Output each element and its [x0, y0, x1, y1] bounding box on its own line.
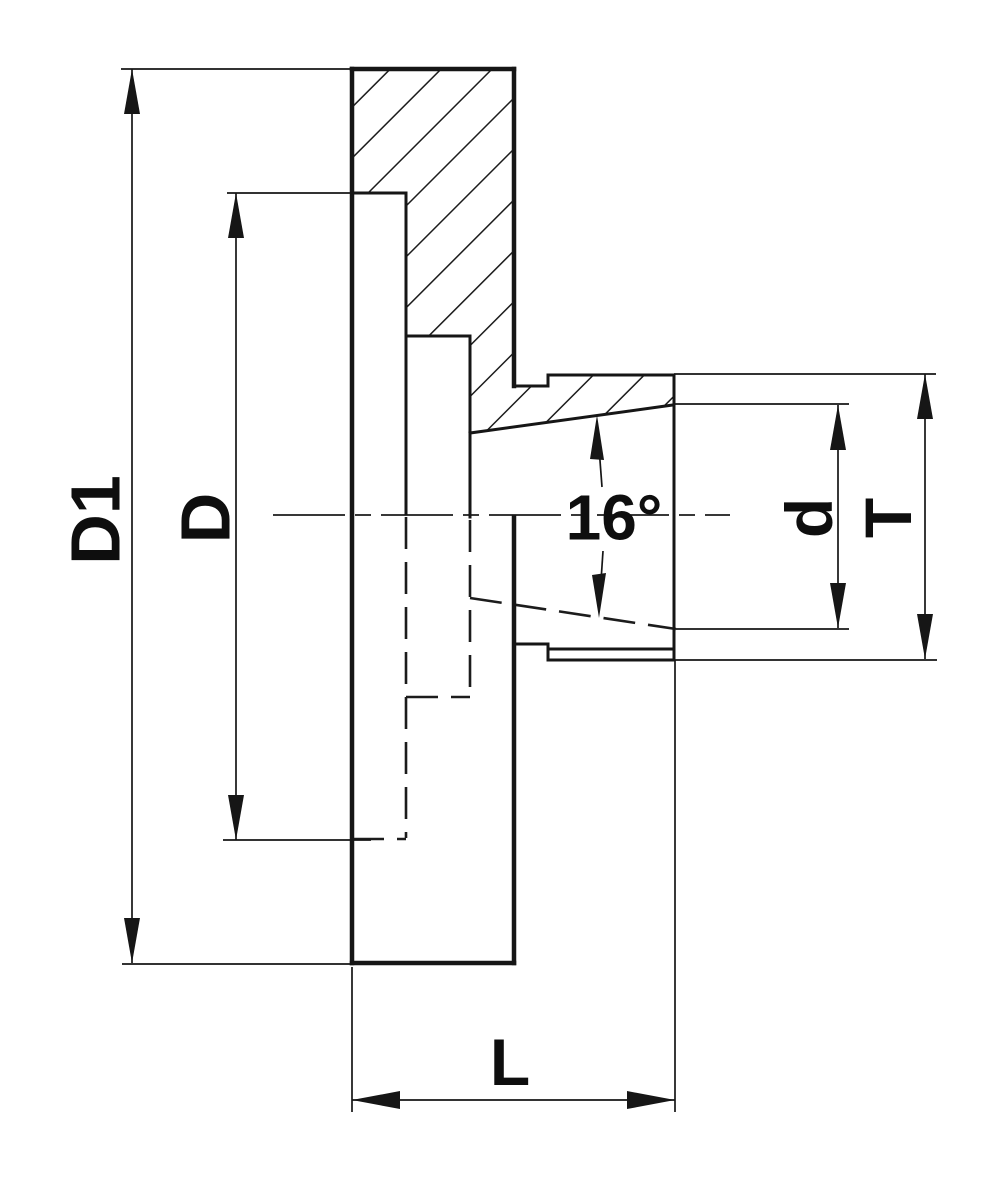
- relief-groove-lower: [514, 644, 548, 660]
- dimension-d-outer: D: [167, 193, 372, 840]
- l-arrow-left: [352, 1091, 400, 1109]
- t-arrow-up: [917, 374, 933, 419]
- d-arrow-up: [228, 193, 244, 238]
- dimension-angle: 16°: [566, 415, 663, 618]
- angle-label: 16°: [566, 481, 663, 553]
- angle-arrow-up: [590, 415, 604, 460]
- d-bore-label: d: [772, 498, 846, 538]
- t-label: T: [851, 498, 925, 538]
- technical-drawing: D1 D d T: [0, 0, 1000, 1180]
- relief-groove-upper: [514, 375, 548, 386]
- d-bore-arrow-down: [830, 583, 846, 628]
- angle-arrow-down: [592, 573, 606, 618]
- t-arrow-down: [917, 614, 933, 659]
- drawing-canvas: D1 D d T: [0, 0, 1000, 1180]
- d1-arrow-up: [124, 69, 140, 114]
- d1-label: D1: [57, 475, 135, 564]
- d-arrow-down: [228, 795, 244, 840]
- d1-arrow-down: [124, 918, 140, 963]
- l-arrow-right: [627, 1091, 675, 1109]
- d-bore-arrow-up: [830, 405, 846, 450]
- hidden-taper-lower: [470, 598, 676, 629]
- dimension-d-bore: d: [674, 404, 849, 629]
- d-outer-label: D: [167, 493, 245, 544]
- l-label: L: [490, 1025, 530, 1099]
